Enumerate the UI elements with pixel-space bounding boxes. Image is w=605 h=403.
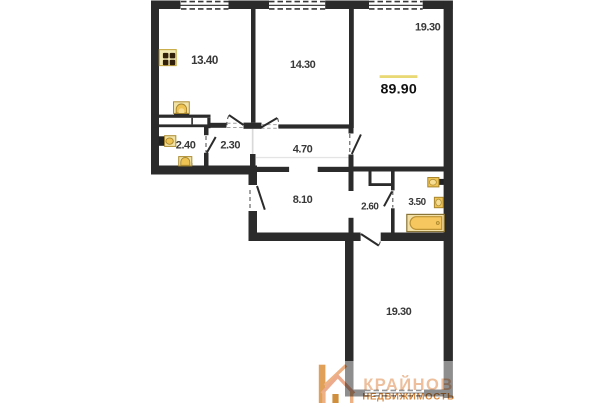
svg-text:19.30: 19.30 bbox=[386, 306, 412, 318]
svg-text:3.50: 3.50 bbox=[408, 197, 426, 208]
svg-text:89.90: 89.90 bbox=[380, 82, 417, 98]
svg-text:НЕДВИЖИМОСТЬ: НЕДВИЖИМОСТЬ bbox=[362, 391, 454, 402]
svg-text:2.40: 2.40 bbox=[176, 140, 196, 152]
svg-text:13.40: 13.40 bbox=[191, 54, 218, 67]
svg-text:4.70: 4.70 bbox=[293, 143, 313, 155]
svg-text:8.10: 8.10 bbox=[293, 194, 313, 206]
svg-text:2.60: 2.60 bbox=[361, 202, 379, 213]
svg-text:14.30: 14.30 bbox=[290, 59, 316, 71]
svg-text:19.30: 19.30 bbox=[415, 22, 441, 34]
svg-text:2.30: 2.30 bbox=[220, 140, 240, 152]
